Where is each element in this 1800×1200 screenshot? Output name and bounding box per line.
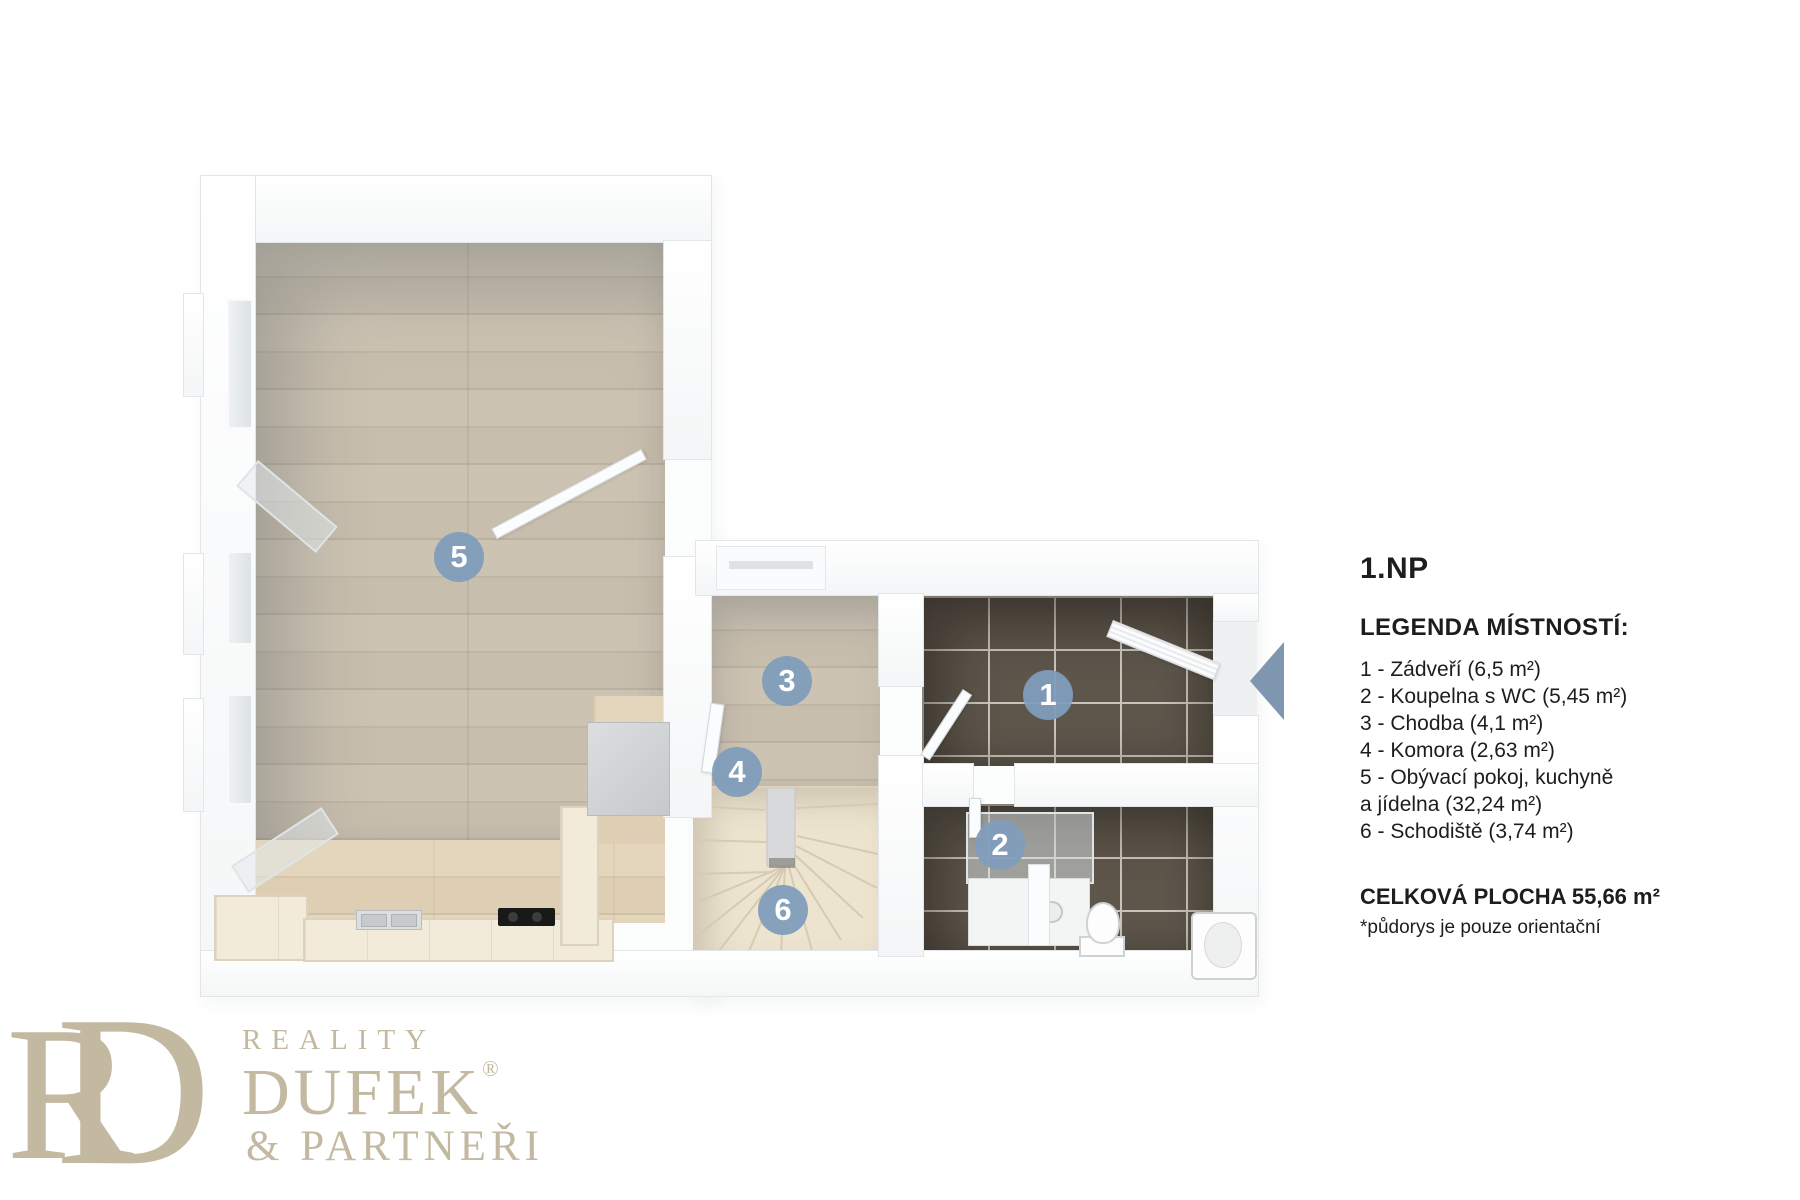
corridor-window-glass [729,561,813,569]
stair-newel [767,788,795,866]
wall-top-left-wing [200,175,712,243]
wall-entry-bathroom-left [922,763,974,807]
window-bay-top [183,293,204,397]
floorplan-page: 1 2 3 4 5 6 1.NP LEGENDA MÍSTNOSTÍ: 1 - … [0,0,1800,1200]
logo-partneri-text: & PARTNEŘI [246,1125,544,1168]
logo-monogram-r: R [6,998,134,1190]
kitchen-floor-strip-bottom [253,840,665,923]
legend-item-2: 2 - Koupelna s WC (5,45 m²) [1360,685,1627,709]
wall-entry-bathroom-right [1014,763,1259,807]
room-badge-3: 3 [762,656,812,706]
window-glass-top [227,299,253,429]
window-glass-middle [227,551,253,645]
room-badge-4: 4 [712,747,762,797]
logo-dufek-text: DUFEK® [242,1058,499,1126]
logo-reality-text: REALITY [242,1026,436,1055]
legend-item-5-cont: a jídelna (32,24 m²) [1360,793,1542,817]
kitchen-sink [356,910,422,930]
wall-corridor-entry-upper [878,593,924,687]
floor-title: 1.NP [1360,552,1429,586]
room-badge-2: 2 [975,820,1025,870]
corridor-top-window [716,546,826,590]
kitchen-cabinet-vertical [560,806,599,946]
kitchen-appliance [587,722,670,816]
legend-item-5: 5 - Obývací pokoj, kuchyně [1360,766,1613,790]
wall-right-upper [1213,593,1259,622]
toilet-bowl [1086,902,1120,944]
wall-stairs-bathroom [878,755,924,957]
legend-item-1: 1 - Zádveří (6,5 m²) [1360,658,1541,682]
legend-item-6: 6 - Schodiště (3,74 m²) [1360,820,1574,844]
window-bay-middle [183,553,204,655]
bathroom-partition [1028,864,1050,946]
room-badge-1: 1 [1023,670,1073,720]
cooktop [498,908,555,926]
kitchen-cabinet-left [214,895,308,961]
legend-total-area: CELKOVÁ PLOCHA 55,66 m² [1360,884,1660,910]
agency-logo: D R REALITY DUFEK® & PARTNEŘI [10,1010,690,1200]
legend-note: *půdorys je pouze orientační [1360,917,1601,939]
window-bay-bottom [183,698,204,812]
legend-item-3: 3 - Chodba (4,1 m²) [1360,712,1543,736]
legend-item-4: 4 - Komora (2,63 m²) [1360,739,1555,763]
registered-mark-icon: ® [482,1056,499,1081]
window-glass-bottom [227,694,253,805]
room-badge-5: 5 [434,532,484,582]
wall-room5-right-upper [663,240,712,460]
entrance-arrow-icon [1250,642,1284,720]
washbasin [1191,912,1257,980]
legend-heading: LEGENDA MÍSTNOSTÍ: [1360,614,1629,642]
room-badge-6: 6 [758,885,808,935]
